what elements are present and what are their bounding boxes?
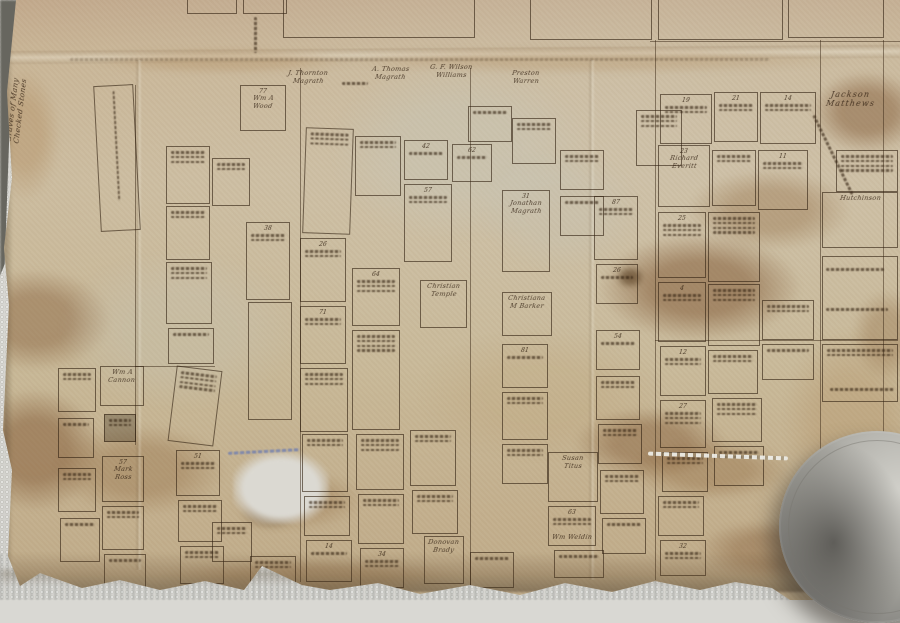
- illegible-writing: [305, 250, 341, 253]
- illegible-writing: [357, 285, 395, 288]
- illegible-writing: [517, 128, 551, 131]
- plot-box: [212, 158, 250, 206]
- plot-box: 57MarkRoss: [102, 456, 144, 502]
- illegible-writing: [305, 255, 341, 258]
- plot-number: 42: [422, 143, 431, 150]
- plot-box: [355, 136, 401, 196]
- inscription-line: Matthews: [825, 99, 875, 108]
- plot-box: 71: [300, 306, 346, 364]
- illegible-writing: [361, 439, 399, 442]
- illegible-writing: [565, 155, 599, 158]
- scribble-mark: [254, 14, 257, 53]
- plot-box: [58, 418, 94, 458]
- plot-name: Everitt: [671, 163, 697, 171]
- illegible-writing: [171, 216, 205, 219]
- illegible-writing: [171, 151, 205, 154]
- illegible-writing: [841, 155, 893, 158]
- plot-box: 21: [714, 92, 758, 142]
- illegible-writing: [841, 169, 893, 172]
- illegible-writing: [310, 142, 348, 146]
- illegible-writing: [217, 163, 245, 166]
- plot-box: 19: [660, 94, 712, 144]
- plot-number: 57: [424, 187, 433, 194]
- faded-scrawl: [826, 308, 888, 311]
- illegible-writing: [765, 109, 811, 112]
- plot-box: [712, 150, 756, 206]
- plot-box: [708, 284, 760, 346]
- illegible-writing: [457, 156, 487, 159]
- illegible-writing: [181, 462, 215, 465]
- illegible-writing: [601, 276, 633, 279]
- illegible-writing: [663, 506, 699, 509]
- plot-number: 38: [264, 225, 273, 232]
- plot-box: 51: [176, 450, 220, 496]
- illegible-writing: [665, 412, 701, 415]
- inscription: PrestonWarren: [512, 70, 539, 85]
- illegible-writing: [665, 111, 707, 114]
- plot-box: [600, 470, 644, 514]
- illegible-writing: [667, 457, 703, 460]
- illegible-writing: [357, 349, 395, 352]
- faded-scrawl: [830, 388, 894, 391]
- section-box: [243, 0, 287, 14]
- plot-box: 12: [660, 346, 706, 396]
- illegible-writing: [717, 413, 757, 416]
- inscription: JacksonMatthews: [826, 90, 875, 108]
- plot-box: [166, 146, 210, 204]
- plot-box: [356, 434, 404, 490]
- illegible-writing: [841, 165, 893, 168]
- section-box: H: [788, 0, 884, 38]
- illegible-writing: [217, 532, 247, 535]
- illegible-writing: [601, 386, 635, 389]
- inscription-line: Jackson: [830, 90, 871, 99]
- plot-box: [166, 262, 212, 324]
- illegible-writing: [311, 133, 349, 137]
- section-box: [187, 0, 237, 14]
- illegible-writing: [409, 196, 447, 199]
- plot-box: 77Wm AWood: [240, 85, 286, 131]
- inscription-line: Magrath: [292, 78, 324, 86]
- illegible-writing: [599, 208, 633, 211]
- illegible-writing: [357, 335, 395, 338]
- plot-box: [302, 127, 354, 235]
- inscription: Wm Weldin: [552, 534, 592, 542]
- faded-scrawl: [70, 58, 770, 61]
- illegible-writing: [309, 501, 345, 504]
- illegible-writing: [109, 419, 131, 422]
- plot-number: 14: [325, 543, 334, 550]
- illegible-writing: [107, 516, 139, 519]
- plot-number: 54: [614, 333, 623, 340]
- illegible-writing: [663, 234, 701, 237]
- plot-box: [822, 344, 898, 402]
- plot-box: 27: [660, 400, 706, 448]
- illegible-writing: [665, 106, 707, 109]
- plot-box: 81: [502, 344, 548, 388]
- illegible-writing: [357, 345, 395, 348]
- plot-box: [708, 350, 758, 394]
- illegible-writing: [599, 213, 633, 216]
- plot-box: [300, 368, 348, 432]
- illegible-writing: [663, 299, 701, 302]
- illegible-writing: [601, 342, 635, 345]
- plot-box: 42: [404, 140, 448, 180]
- inscription-line: Magrath: [375, 74, 407, 82]
- illegible-writing: [63, 478, 91, 481]
- plot-box: 26: [300, 238, 346, 302]
- illegible-writing: [713, 289, 755, 292]
- grid-line: [650, 41, 900, 42]
- illegible-writing: [767, 310, 809, 313]
- plot-number: 27: [679, 403, 688, 410]
- illegible-writing: [363, 499, 399, 502]
- illegible-writing: [305, 318, 341, 321]
- plot-number: 26: [613, 267, 622, 274]
- illegible-writing: [601, 381, 635, 384]
- illegible-writing: [663, 224, 701, 227]
- illegible-writing: [663, 501, 699, 504]
- plot-box: [102, 506, 144, 550]
- illegible-writing: [827, 349, 893, 352]
- plot-box: 31JonathanMagrath: [502, 190, 550, 272]
- plot-box: [596, 376, 640, 420]
- faded-scrawl: [342, 82, 368, 85]
- plot-box: [468, 106, 512, 142]
- plot-box: 14: [760, 92, 816, 144]
- plot-box: [762, 344, 814, 380]
- illegible-writing: [63, 378, 91, 381]
- paper-map: GH77Wm AWood42625719211423RichardEveritt…: [0, 0, 900, 600]
- plot-box: [304, 496, 350, 536]
- illegible-writing: [507, 402, 543, 405]
- illegible-writing: [309, 506, 345, 509]
- plot-box: [598, 424, 642, 464]
- plot-name: Cannon: [108, 377, 136, 385]
- illegible-writing: [713, 231, 755, 234]
- plot-box: ChristianTemple: [420, 280, 467, 328]
- illegible-writing: [713, 355, 753, 358]
- plot-box: [708, 212, 760, 282]
- plot-box: [58, 468, 96, 512]
- plot-box: 11: [758, 150, 808, 210]
- illegible-writing: [607, 523, 641, 526]
- photo-root: GH77Wm AWood42625719211423RichardEveritt…: [0, 0, 900, 600]
- illegible-writing: [415, 440, 451, 443]
- illegible-writing: [357, 340, 395, 343]
- plot-box: [658, 496, 704, 536]
- plot-number: 81: [521, 347, 530, 354]
- plot-number: 21: [732, 95, 741, 102]
- plot-box: [410, 430, 456, 486]
- scribble-mark: [70, 56, 770, 61]
- illegible-writing: [767, 349, 809, 352]
- plot-box: Wm ACannon: [100, 366, 144, 406]
- illegible-writing: [173, 333, 209, 336]
- illegible-writing: [65, 523, 95, 526]
- illegible-writing: [717, 403, 757, 406]
- plot-box: Hutchinson: [822, 192, 898, 248]
- plot-box: 38: [246, 222, 290, 300]
- illegible-writing: [251, 234, 285, 237]
- illegible-writing: [717, 408, 757, 411]
- plot-box: [168, 328, 214, 364]
- plot-number: 64: [372, 271, 381, 278]
- plot-number: 14: [784, 95, 793, 102]
- grid-line: [135, 366, 215, 367]
- illegible-writing: [717, 160, 751, 163]
- plot-box: [560, 150, 604, 190]
- plot-name: M Barker: [510, 303, 545, 311]
- illegible-writing: [171, 156, 205, 159]
- plot-box: [502, 444, 548, 484]
- illegible-writing: [183, 510, 217, 513]
- section-box: [530, 0, 652, 40]
- illegible-writing: [63, 473, 91, 476]
- illegible-writing: [217, 168, 245, 171]
- illegible-writing: [473, 111, 507, 114]
- inscription: G. F. WilsonWilliams: [430, 64, 472, 79]
- illegible-writing: [361, 449, 399, 452]
- illegible-writing: [713, 222, 755, 225]
- faded-scrawl: [826, 268, 884, 271]
- plot-box: 23RichardEveritt: [658, 145, 710, 207]
- illegible-writing: [713, 299, 755, 302]
- plot-number: 26: [319, 241, 328, 248]
- illegible-writing: [63, 423, 89, 426]
- illegible-writing: [713, 294, 755, 297]
- illegible-writing: [507, 454, 543, 457]
- illegible-writing: [665, 358, 701, 361]
- illegible-writing: [360, 146, 396, 149]
- plot-number: 62: [468, 147, 477, 154]
- illegible-writing: [305, 378, 343, 381]
- illegible-writing: [717, 155, 751, 158]
- plot-box: 64: [352, 268, 400, 326]
- illegible-writing: [181, 467, 215, 470]
- plot-box: 25: [658, 212, 706, 278]
- illegible-writing: [553, 523, 591, 526]
- illegible-writing: [409, 201, 447, 204]
- plot-box: 87: [594, 196, 638, 260]
- section-box: G: [658, 0, 783, 40]
- illegible-writing: [409, 152, 443, 155]
- illegible-writing: [63, 373, 91, 376]
- plot-box: 57: [404, 184, 452, 262]
- illegible-writing: [553, 518, 591, 521]
- inscription-line: Wm Weldin: [551, 534, 592, 542]
- plot-number: 63: [568, 509, 577, 516]
- illegible-writing: [713, 217, 755, 220]
- illegible-writing: [183, 505, 217, 508]
- illegible-writing: [171, 272, 207, 275]
- illegible-writing: [719, 109, 753, 112]
- illegible-writing: [763, 162, 803, 165]
- illegible-writing: [605, 480, 639, 483]
- illegible-writing: [417, 500, 453, 503]
- plot-box: [836, 150, 898, 192]
- plot-box: [502, 392, 548, 440]
- plot-name: Ross: [114, 474, 132, 482]
- plot-box: [302, 434, 348, 492]
- plot-box: [662, 452, 708, 492]
- illegible-writing: [357, 280, 395, 283]
- plot-box: [248, 302, 292, 420]
- illegible-writing: [415, 435, 451, 438]
- illegible-writing: [763, 167, 803, 170]
- plot-box: [358, 494, 404, 544]
- illegible-writing: [507, 449, 543, 452]
- illegible-writing: [363, 504, 399, 507]
- plot-box: [512, 118, 556, 164]
- scribble-mark: [830, 386, 894, 391]
- plot-name: Hutchinson: [839, 195, 881, 203]
- illegible-writing: [217, 527, 247, 530]
- plot-name: Temple: [430, 291, 457, 299]
- plot-name: Titus: [563, 463, 582, 471]
- illegible-writing: [417, 495, 453, 498]
- illegible-writing: [507, 356, 543, 359]
- illegible-writing: [171, 161, 205, 164]
- plot-number: 25: [678, 215, 687, 222]
- plot-box: 4: [658, 282, 706, 342]
- scribble-mark: [826, 306, 888, 311]
- illegible-writing: [665, 363, 701, 366]
- plot-number: 51: [194, 453, 203, 460]
- inscription: A. ThomasMagrath: [372, 66, 409, 81]
- illegible-writing: [765, 104, 811, 107]
- scribble-mark: [826, 266, 884, 271]
- plot-box: [166, 206, 210, 260]
- illegible-writing: [171, 267, 207, 270]
- illegible-writing: [605, 475, 639, 478]
- plot-box: [104, 414, 136, 442]
- plot-number: 19: [682, 97, 691, 104]
- illegible-writing: [565, 160, 599, 163]
- illegible-writing: [171, 211, 205, 214]
- plot-number: 4: [680, 285, 685, 292]
- illegible-writing: [603, 434, 637, 437]
- illegible-writing: [107, 511, 139, 514]
- illegible-writing-vertical: [112, 91, 120, 201]
- plot-box: [602, 518, 646, 554]
- plot-number: 71: [319, 309, 328, 316]
- plot-name: Wood: [253, 103, 274, 111]
- illegible-writing: [517, 123, 551, 126]
- illegible-writing: [307, 439, 343, 442]
- illegible-writing: [310, 137, 348, 141]
- scribble-mark: [342, 80, 368, 85]
- section-box: [283, 0, 475, 38]
- illegible-writing: [357, 290, 395, 293]
- vertical-crease: [588, 60, 595, 580]
- illegible-writing: [307, 444, 343, 447]
- faded-scrawl: [254, 17, 257, 53]
- illegible-writing: [663, 294, 701, 297]
- illegible-writing: [305, 373, 343, 376]
- illegible-writing: [719, 104, 753, 107]
- illegible-writing: [305, 383, 343, 386]
- inscription-line: Williams: [435, 72, 467, 80]
- plot-box: 62: [452, 144, 492, 182]
- illegible-writing: [663, 229, 701, 232]
- plot-box: 26: [596, 264, 638, 304]
- inscription: J. ThorntonMagrath: [288, 70, 328, 85]
- plot-number: 32: [679, 543, 688, 550]
- illegible-writing: [109, 424, 131, 427]
- plot-number: 11: [779, 153, 788, 160]
- illegible-writing: [603, 429, 637, 432]
- plot-box: [93, 84, 141, 232]
- illegible-writing: [713, 227, 755, 230]
- plot-box: [412, 490, 458, 534]
- plot-box: [168, 365, 223, 446]
- illegible-writing: [713, 360, 753, 363]
- illegible-writing: [827, 354, 893, 357]
- illegible-writing: [361, 444, 399, 447]
- inscription-line: Warren: [512, 78, 539, 86]
- illegible-writing: [665, 417, 701, 420]
- plot-box: [58, 368, 96, 412]
- plot-number: 87: [612, 199, 621, 206]
- plot-box: [712, 398, 762, 442]
- plot-box: [352, 330, 400, 430]
- illegible-writing: [305, 323, 341, 326]
- plot-number: 12: [679, 349, 688, 356]
- plot-name: Magrath: [510, 208, 542, 216]
- illegible-writing: [667, 462, 703, 465]
- illegible-writing: [507, 397, 543, 400]
- illegible-writing: [665, 422, 701, 425]
- illegible-writing: [251, 239, 285, 242]
- illegible-writing: [841, 160, 893, 163]
- illegible-writing: [171, 277, 207, 280]
- plot-box: [762, 300, 814, 340]
- illegible-writing: [360, 141, 396, 144]
- illegible-writing: [767, 305, 809, 308]
- plot-box: SusanTitus: [548, 452, 598, 502]
- plot-box: ChristianaM Barker: [502, 292, 552, 336]
- plot-box: 54: [596, 330, 640, 370]
